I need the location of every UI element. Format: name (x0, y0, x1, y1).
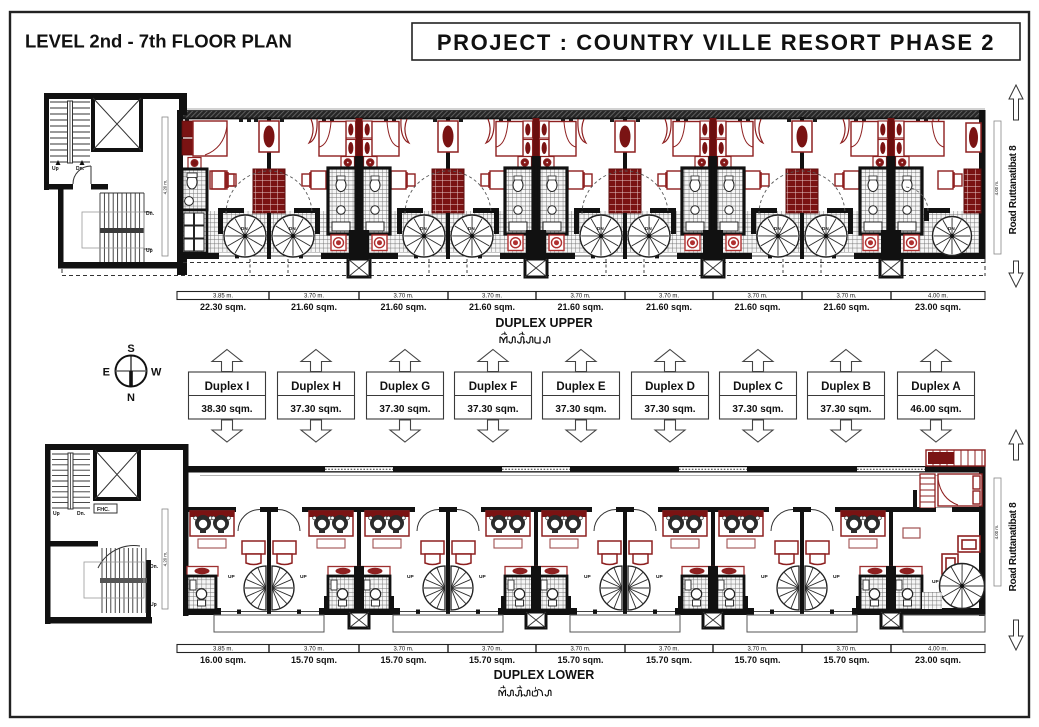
svg-text:UP: UP (833, 574, 840, 580)
svg-text:21.60 sqm.: 21.60 sqm. (291, 302, 337, 312)
svg-text:37.30 sqm.: 37.30 sqm. (555, 404, 606, 415)
svg-text:DUPLEX UPPER: DUPLEX UPPER (495, 316, 592, 330)
svg-text:Duplex C: Duplex C (733, 381, 783, 393)
svg-text:Duplex D: Duplex D (645, 381, 695, 393)
svg-text:21.60 sqm.: 21.60 sqm. (646, 302, 692, 312)
svg-text:DN: DN (289, 226, 296, 231)
svg-text:37.30 sqm.: 37.30 sqm. (732, 404, 783, 415)
svg-text:UP: UP (584, 574, 591, 580)
svg-text:DN: DN (948, 226, 955, 231)
svg-text:21.60 sqm.: 21.60 sqm. (380, 302, 426, 312)
svg-text:3.70 m.: 3.70 m. (393, 294, 413, 300)
svg-text:S: S (127, 343, 134, 355)
svg-text:Up: Up (52, 166, 59, 172)
svg-text:3.70 m.: 3.70 m. (482, 647, 502, 653)
svg-text:3.70 m.: 3.70 m. (659, 647, 679, 653)
svg-text:LEVEL 2nd - 7th FLOOR PLAN: LEVEL 2nd - 7th FLOOR PLAN (25, 31, 292, 52)
svg-text:15.70 sqm.: 15.70 sqm. (823, 655, 869, 665)
svg-text:37.30 sqm.: 37.30 sqm. (467, 404, 518, 415)
svg-text:Duplex H: Duplex H (291, 381, 341, 393)
svg-text:37.30 sqm.: 37.30 sqm. (820, 404, 871, 415)
svg-text:DN: DN (468, 226, 475, 231)
svg-text:22.30 sqm.: 22.30 sqm. (200, 302, 246, 312)
svg-text:15.70 sqm.: 15.70 sqm. (557, 655, 603, 665)
svg-text:UP: UP (656, 574, 663, 580)
svg-text:Dn.: Dn. (150, 564, 159, 570)
svg-text:3.70 m.: 3.70 m. (570, 294, 590, 300)
svg-text:UP: UP (932, 579, 939, 585)
svg-text:4.20 m.: 4.20 m. (163, 552, 168, 567)
svg-text:Up: Up (53, 511, 60, 517)
svg-text:15.70 sqm.: 15.70 sqm. (291, 655, 337, 665)
svg-text:UP: UP (761, 574, 768, 580)
svg-text:38.30 sqm.: 38.30 sqm. (201, 404, 252, 415)
svg-text:Duplex G: Duplex G (380, 381, 431, 393)
svg-text:N: N (127, 392, 135, 404)
svg-text:15.70 sqm.: 15.70 sqm. (734, 655, 780, 665)
svg-text:15.70 sqm.: 15.70 sqm. (380, 655, 426, 665)
svg-text:UP: UP (300, 574, 307, 580)
svg-text:21.60 sqm.: 21.60 sqm. (469, 302, 515, 312)
svg-text:Duplex A: Duplex A (911, 381, 960, 393)
svg-text:3.85 m.: 3.85 m. (213, 294, 233, 300)
svg-text:Duplex F: Duplex F (469, 381, 518, 393)
svg-text:Duplex E: Duplex E (556, 381, 606, 393)
svg-text:Road Ruttanatibat 8: Road Ruttanatibat 8 (1008, 502, 1019, 591)
svg-text:E: E (103, 367, 110, 379)
svg-text:Duplex I: Duplex I (205, 381, 250, 393)
svg-text:UP: UP (407, 574, 414, 580)
svg-text:Road Ruttanatibat 8: Road Ruttanatibat 8 (1008, 145, 1019, 234)
svg-text:21.60 sqm.: 21.60 sqm. (734, 302, 780, 312)
svg-text:37.30 sqm.: 37.30 sqm. (379, 404, 430, 415)
svg-text:DN: DN (822, 226, 829, 231)
svg-text:46.00 sqm.: 46.00 sqm. (910, 404, 961, 415)
svg-text:23.00 sqm.: 23.00 sqm. (915, 655, 961, 665)
svg-text:Dn.: Dn. (146, 211, 155, 217)
svg-text:4.00 m.: 4.00 m. (994, 181, 999, 196)
svg-text:Up: Up (146, 248, 153, 254)
svg-text:FHC.: FHC. (97, 507, 110, 513)
svg-text:4.00 m.: 4.00 m. (928, 647, 948, 653)
svg-text:3.70 m.: 3.70 m. (836, 294, 856, 300)
svg-text:4.00 m.: 4.00 m. (928, 294, 948, 300)
svg-text:4.00 m.: 4.00 m. (994, 525, 999, 540)
svg-text:PROJECT : COUNTRY VILLE RESO: PROJECT : COUNTRY VILLE RESORT PHASE 2 (437, 30, 995, 55)
svg-text:3.70 m.: 3.70 m. (836, 647, 856, 653)
svg-text:15.70 sqm.: 15.70 sqm. (469, 655, 515, 665)
svg-text:UP: UP (479, 574, 486, 580)
svg-text:W: W (151, 367, 162, 379)
svg-text:3.70 m.: 3.70 m. (304, 647, 324, 653)
svg-text:3.85 m.: 3.85 m. (213, 647, 233, 653)
svg-text:DN: DN (241, 226, 248, 231)
svg-text:DN: DN (774, 226, 781, 231)
svg-text:37.30 sqm.: 37.30 sqm. (290, 404, 341, 415)
svg-text:Dn.: Dn. (77, 511, 86, 517)
svg-text:3.70 m.: 3.70 m. (570, 647, 590, 653)
svg-text:16.00 sqm.: 16.00 sqm. (200, 655, 246, 665)
svg-text:DN: DN (420, 226, 427, 231)
svg-text:3.70 m.: 3.70 m. (659, 294, 679, 300)
svg-text:3.70 m.: 3.70 m. (304, 294, 324, 300)
svg-text:15.70 sqm.: 15.70 sqm. (646, 655, 692, 665)
svg-text:UP: UP (228, 574, 235, 580)
svg-text:Duplex B: Duplex B (821, 381, 871, 393)
svg-text:3.70 m.: 3.70 m. (393, 647, 413, 653)
svg-text:4.20 m.: 4.20 m. (163, 180, 168, 195)
svg-text:DUPLEX LOWER: DUPLEX LOWER (494, 668, 595, 682)
svg-text:DN: DN (645, 226, 652, 231)
svg-text:DN: DN (597, 226, 604, 231)
svg-text:Up: Up (150, 602, 157, 608)
svg-text:3.70 m.: 3.70 m. (747, 294, 767, 300)
svg-text:21.60 sqm.: 21.60 sqm. (557, 302, 603, 312)
svg-text:3.70 m.: 3.70 m. (747, 647, 767, 653)
svg-text:23.00 sqm.: 23.00 sqm. (915, 302, 961, 312)
svg-text:37.30 sqm.: 37.30 sqm. (644, 404, 695, 415)
svg-text:21.60 sqm.: 21.60 sqm. (823, 302, 869, 312)
svg-text:3.70 m.: 3.70 m. (482, 294, 502, 300)
